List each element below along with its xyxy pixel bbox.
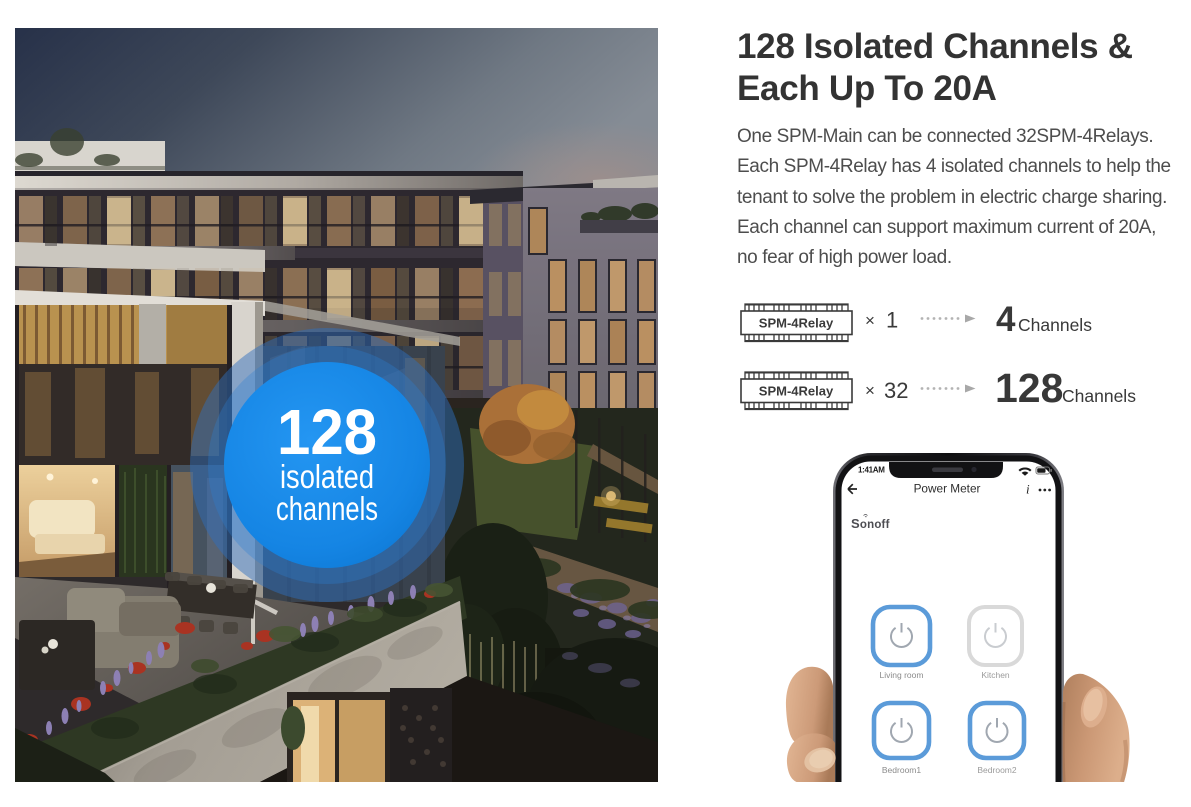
svg-text:×: × [865, 311, 875, 330]
svg-text:1: 1 [886, 308, 898, 333]
svg-text:×: × [865, 381, 875, 400]
svg-text:Bedroom1: Bedroom1 [882, 765, 921, 775]
svg-text:Power Meter: Power Meter [914, 482, 981, 496]
svg-text:Sonoff: Sonoff [851, 516, 890, 531]
svg-text:Kitchen: Kitchen [981, 670, 1010, 680]
svg-text:32: 32 [884, 378, 908, 403]
svg-text:Channels: Channels [1018, 315, 1092, 335]
svg-text:channels: channels [276, 490, 378, 527]
svg-text:Living room: Living room [880, 670, 924, 680]
svg-text:128: 128 [995, 371, 1063, 411]
svg-text:SPM-4Relay: SPM-4Relay [759, 384, 834, 399]
svg-text:i: i [1026, 482, 1030, 497]
svg-text:Channels: Channels [1062, 386, 1136, 406]
svg-text:SPM-4Relay: SPM-4Relay [759, 316, 834, 331]
svg-text:4: 4 [996, 303, 1016, 339]
svg-text:1:41AM: 1:41AM [858, 466, 885, 475]
svg-text:Bedroom2: Bedroom2 [977, 765, 1016, 775]
